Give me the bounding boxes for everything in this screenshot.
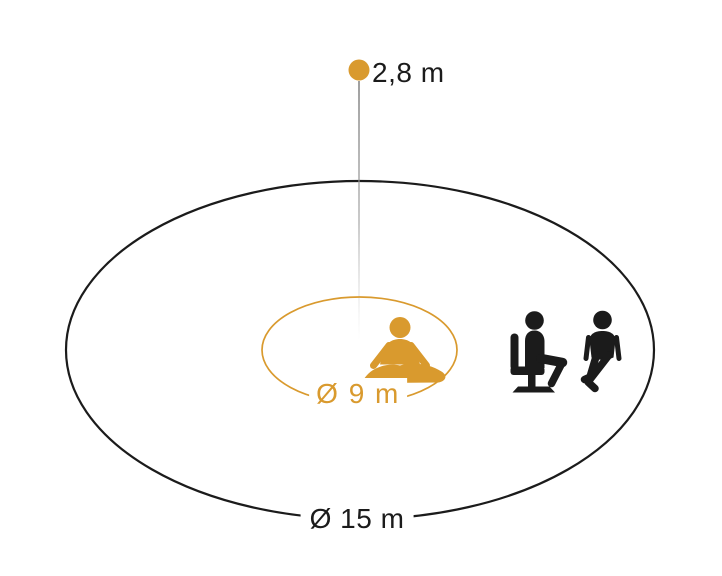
meditating-person-head: [390, 317, 411, 338]
walking-person-icon: [585, 311, 620, 389]
chair-base: [513, 387, 556, 393]
seated-person-shin: [552, 363, 563, 384]
outer-diameter-label: Ø 15 m: [301, 503, 414, 535]
chair-pedestal: [528, 374, 536, 388]
seated-person-icon: [511, 311, 563, 392]
chair-backrest: [511, 334, 519, 371]
mounting-height-label: 2,8 m: [370, 57, 447, 89]
walking-person-head: [593, 311, 612, 330]
chair-seat: [511, 367, 545, 376]
meditating-person-icon: [364, 317, 446, 383]
seated-person-head: [525, 311, 544, 330]
walking-person-right-arm: [617, 338, 620, 359]
detection-range-diagram: 2,8 m Ø 9 m Ø 15 m: [0, 0, 722, 576]
walking-person-left-arm: [586, 338, 589, 359]
sensor-dot: [349, 60, 370, 81]
outer-detection-zone-ellipse: [66, 181, 654, 519]
inner-diameter-label: Ø 9 m: [309, 378, 407, 410]
